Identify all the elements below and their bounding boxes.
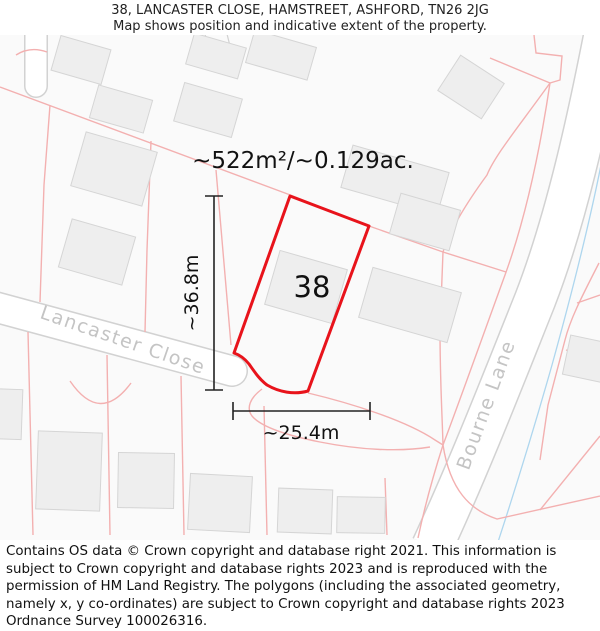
building — [277, 488, 333, 534]
property-map: Lancaster Close Bourne Lane ~36.8m ~25.4… — [0, 35, 600, 540]
area-label: ~522m²/~0.129ac. — [192, 148, 414, 174]
building — [118, 453, 175, 509]
page-subtitle: Map shows position and indicative extent… — [0, 19, 600, 34]
building — [188, 473, 253, 532]
footer-copyright: Contains OS data © Crown copyright and d… — [0, 540, 600, 625]
header: 38, LANCASTER CLOSE, HAMSTREET, ASHFORD,… — [0, 0, 600, 35]
dimension-label-horizontal: ~25.4m — [263, 422, 340, 444]
page-title: 38, LANCASTER CLOSE, HAMSTREET, ASHFORD,… — [0, 0, 600, 19]
building — [36, 431, 103, 511]
dimension-label-vertical: ~36.8m — [181, 255, 203, 332]
plot-number-label: 38 — [294, 270, 331, 304]
map-canvas: Lancaster Close Bourne Lane ~36.8m ~25.4… — [0, 35, 600, 540]
building — [337, 497, 386, 534]
building — [0, 388, 23, 439]
